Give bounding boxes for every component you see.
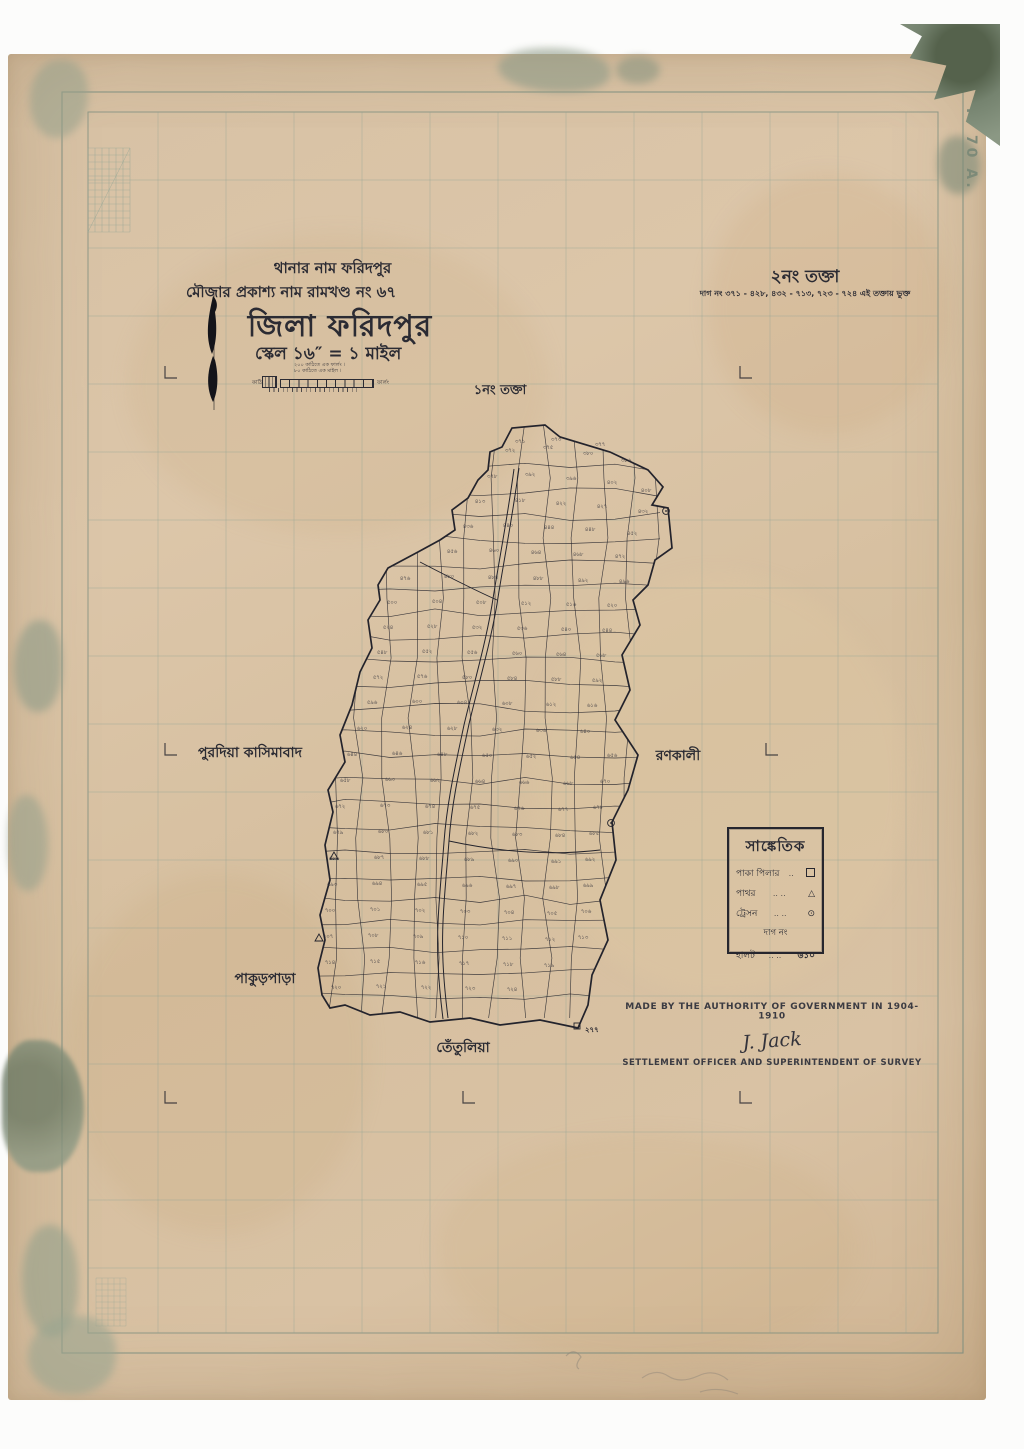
plot-number: ৬১৬ bbox=[587, 703, 598, 709]
plot-number: ৪২২ bbox=[556, 501, 566, 507]
neighbor-label-west: পুরদিয়া কাসিমাবাদ bbox=[180, 741, 320, 765]
scale-bar-ticks bbox=[269, 388, 361, 392]
plot-number: ৫৭২ bbox=[373, 675, 383, 681]
legend-row-pucca-pillar: পাকা পিলার .. bbox=[736, 866, 815, 881]
pucca-pillar-square-icon bbox=[803, 868, 815, 880]
plot-number: ৭০৬ bbox=[581, 909, 592, 915]
plot-number: ৭১৬ bbox=[415, 960, 426, 966]
plot-number: ৬২৮ bbox=[447, 726, 458, 732]
plot-number: ৭২১ bbox=[376, 984, 386, 990]
plot-number: ৪১৩ bbox=[475, 499, 486, 505]
sheet1-label: ১নং তক্তা bbox=[455, 381, 545, 402]
plot-number: ৪৯২ bbox=[578, 578, 588, 584]
plot-number: ৬৬২ bbox=[430, 778, 440, 784]
cadastral-map: ৩৭১৩৭৩৩৭৭৩৭২৩৭৫৩৮০৩৮৬৩৭৮৩৯২৩৯৬৪০২৪০৮৪১৩৪… bbox=[0, 0, 1024, 1449]
plot-number: ৩৭৫ bbox=[543, 445, 553, 451]
credits-block: MADE BY THE AUTHORITY OF GOVERNMENT IN 1… bbox=[622, 1002, 922, 1068]
plot-number: ৫২৮ bbox=[427, 624, 438, 630]
plot-number: ৬৪০ bbox=[580, 729, 590, 735]
plot-number: ৭০১ bbox=[370, 907, 380, 913]
plot-number: ৬৬৮ bbox=[563, 781, 574, 787]
plot-number: ৭০৪ bbox=[504, 910, 514, 916]
scale-caption-2: ৮০ কাঠিতে এক মাইল । bbox=[294, 368, 402, 374]
plot-number: ৫০৮ bbox=[476, 600, 487, 606]
plot-number: ৬৮৯ bbox=[464, 857, 474, 863]
plot-number: ৪৩২ bbox=[638, 509, 648, 515]
plot-number: ৬৯১ bbox=[551, 859, 561, 865]
plot-number: ৬৮৩ bbox=[512, 832, 523, 838]
plot-number: ৬৫২ bbox=[526, 754, 536, 760]
scale-bar-subdivision bbox=[262, 376, 277, 388]
sheet2-plot-range: দাগ নং ৩৭১ - ৪২৮, ৪৩২ - ৭১৩, ৭২৩ - ৭২৪ এ… bbox=[685, 288, 925, 301]
signature: J. Jack bbox=[622, 1020, 923, 1063]
plot-number: ৫৬৪ bbox=[556, 652, 566, 658]
plot-number: ৪৭৬ bbox=[400, 576, 411, 582]
corner-plot-number: ২৭৭ bbox=[585, 1026, 599, 1034]
plot-number: ৩৮৬ bbox=[621, 458, 632, 464]
plot-number: ৬৯০ bbox=[508, 858, 518, 864]
plot-number: ৪০৮ bbox=[641, 488, 652, 494]
plot-number: ৬৩২ bbox=[492, 727, 502, 733]
plot-number: ৬৯৯ bbox=[583, 883, 593, 889]
plot-number: ৬৮২ bbox=[468, 831, 478, 837]
plot-number: ৫১২ bbox=[521, 601, 531, 607]
plot-number: ৬৪৮ bbox=[437, 752, 448, 758]
plot-number: ৭০২ bbox=[415, 908, 425, 914]
neighbor-label-east: রণকালী bbox=[638, 744, 718, 768]
plot-number: ৭১৯ bbox=[544, 963, 554, 969]
plot-number: ৪৭২ bbox=[615, 554, 625, 560]
plot-number: ৩৭৮ bbox=[487, 474, 498, 480]
plot-number: ৭২৩ bbox=[465, 986, 476, 992]
plot-number: ৬৭৭ bbox=[558, 807, 568, 813]
plot-number: ৩৯৬ bbox=[566, 476, 577, 482]
legend-title: সাঙ্কেতিক bbox=[736, 835, 815, 860]
plot-number: ৩৭১ bbox=[515, 439, 525, 445]
legend-row-traverse-station: ট্রেসন .. .. ⊙ bbox=[736, 906, 815, 921]
plot-number: ৪১৮ bbox=[515, 498, 526, 504]
plot-number: ৬১২ bbox=[546, 702, 556, 708]
plot-number: ৬৪৪ bbox=[347, 752, 357, 758]
plot-number: ৫২০ bbox=[607, 603, 617, 609]
plot-number: ৫৯৬ bbox=[367, 700, 378, 706]
plot-number: ৬৭৩ bbox=[380, 803, 391, 809]
page-ref-label: P. 70 A. bbox=[963, 108, 979, 191]
plot-number: ৫৫৬ bbox=[467, 650, 478, 656]
plot-number: ৭০৩ bbox=[460, 909, 471, 915]
plot-number: ৪২৭ bbox=[597, 504, 607, 510]
traverse-station-circle-icon: ⊙ bbox=[803, 909, 815, 919]
plot-number: ৪৪৪ bbox=[544, 525, 554, 531]
plot-number: ৬৭৬ bbox=[514, 806, 525, 812]
legend-row-halot: হালট .. .. ৬১০ bbox=[736, 948, 815, 963]
plot-number: ৭১৭ bbox=[459, 961, 469, 967]
plot-number: ৩৭২ bbox=[505, 448, 515, 454]
legend-box: সাঙ্কেতিক পাকা পিলার .. পাথর .. .. △ ট্র… bbox=[727, 827, 824, 954]
plot-number: ৪৮৪ bbox=[488, 575, 498, 581]
plot-number: ৫০০ bbox=[387, 600, 397, 606]
plot-number: ৫৫২ bbox=[422, 649, 432, 655]
plot-number: ৭১০ bbox=[458, 935, 468, 941]
plot-number: ৭১২ bbox=[545, 937, 555, 943]
plot-number: ৫৬০ bbox=[512, 651, 522, 657]
legend-row-stone: পাথর .. .. △ bbox=[736, 886, 815, 901]
plot-number: ৬৮১ bbox=[423, 830, 433, 836]
plot-number: ৪০২ bbox=[607, 480, 617, 486]
plot-number: ৫৩৬ bbox=[517, 626, 528, 632]
plot-number: ৭২০ bbox=[331, 985, 341, 991]
plot-number: ৬৪৬ bbox=[392, 751, 403, 757]
plot-number: ৭২৪ bbox=[507, 987, 517, 993]
plot-number: ৬৭৪ bbox=[425, 804, 435, 810]
plot-number: ৬২৪ bbox=[402, 725, 412, 731]
plot-number: ৪৬৮ bbox=[573, 552, 584, 558]
plot-number: ৭১৮ bbox=[503, 962, 514, 968]
plot-number: ৬৮৪ bbox=[555, 833, 565, 839]
plot-number: ৬৭৫ bbox=[470, 805, 480, 811]
plot-number: ৬৬৬ bbox=[519, 780, 530, 786]
plot-number: ৫০৪ bbox=[432, 599, 442, 605]
plot-number: ৫৭৬ bbox=[417, 674, 428, 680]
plot-number: ৬০০ bbox=[412, 699, 422, 705]
plot-number: ৪৩৬ bbox=[463, 524, 474, 530]
plot-number: ৭০০ bbox=[325, 908, 335, 914]
plot-number: ৫৩২ bbox=[472, 625, 482, 631]
plot-number: ৫৮৮ bbox=[551, 677, 562, 683]
plot-number: ৬৮৫ bbox=[589, 831, 599, 837]
plot-number: ৬৭৯ bbox=[333, 830, 343, 836]
plot-number: ৬৫৮ bbox=[340, 778, 351, 784]
plot-number: ৬৯৬ bbox=[462, 883, 473, 889]
plot-number: ৭০৭ bbox=[323, 934, 333, 940]
stone-triangle-icon: △ bbox=[803, 889, 815, 899]
plot-number: ৬৭২ bbox=[335, 804, 345, 810]
plot-number: ৬৯৭ bbox=[506, 884, 516, 890]
plot-number: ৬৯৪ bbox=[372, 881, 382, 887]
plot-number: ৫৪৮ bbox=[377, 650, 388, 656]
plot-number: ৪৮৮ bbox=[533, 576, 544, 582]
plot-number: ৭১৪ bbox=[325, 960, 335, 966]
plot-number: ৬৮৭ bbox=[374, 855, 384, 861]
plot-number: ৩৯২ bbox=[525, 472, 535, 478]
plot-number: ৪৯৬ bbox=[619, 579, 630, 585]
authority-line: MADE BY THE AUTHORITY OF GOVERNMENT IN 1… bbox=[622, 1003, 922, 1022]
officer-line: SETTLEMENT OFFICER AND SUPERINTENDENT OF… bbox=[622, 1058, 922, 1068]
plot-number: ৩৮০ bbox=[583, 451, 593, 457]
plot-number: ৭০৫ bbox=[547, 911, 557, 917]
plot-number: ৬৫৪ bbox=[570, 755, 580, 761]
plot-number: ৬২০ bbox=[357, 726, 367, 732]
plot-number: ৬৭০ bbox=[600, 779, 610, 785]
plot-number: ৪৪৮ bbox=[585, 527, 596, 533]
plot-number: ৬৯৮ bbox=[549, 885, 560, 891]
plot-number: ৩৭৭ bbox=[595, 442, 605, 448]
plot-number: ৬০৮ bbox=[502, 701, 513, 707]
plot-number: ৬৮৮ bbox=[419, 856, 430, 862]
plot-number: ৬৭৮ bbox=[593, 805, 604, 811]
scale-bar: ২০০ কাঠিতে এক ফার্লং । ৮০ কাঠিতে এক মাইল… bbox=[252, 362, 402, 392]
plot-number: ৫৪৪ bbox=[602, 628, 612, 634]
plot-number: ৩৭৩ bbox=[551, 437, 562, 443]
plot-number: ৪৬৪ bbox=[531, 550, 541, 556]
plot-number: ৬০৪ bbox=[457, 700, 467, 706]
neighbor-label-south: তেঁতুলিয়া bbox=[423, 1036, 503, 1060]
legend-daag-heading: দাগ নং bbox=[736, 926, 815, 940]
plot-number: ৫৮৪ bbox=[507, 676, 517, 682]
thana-name-line: থানার নাম ফরিদপুর bbox=[240, 257, 425, 282]
plot-number: ৭১৩ bbox=[578, 935, 589, 941]
plot-number: ৬৯২ bbox=[585, 857, 595, 863]
halot-plot-number: ৬১০ bbox=[795, 948, 815, 963]
plot-number: ৬৬০ bbox=[385, 777, 395, 783]
plot-number: ৭১১ bbox=[502, 936, 512, 942]
plot-number: ৬৫০ bbox=[482, 753, 492, 759]
plot-number: ৬৯৫ bbox=[417, 882, 427, 888]
plot-number: ৪৬০ bbox=[489, 548, 499, 554]
plot-number: ৬৩৬ bbox=[536, 728, 547, 734]
scale-right-label: ফার্লং bbox=[377, 380, 389, 388]
plot-number: ৫৬৮ bbox=[596, 653, 607, 659]
scanned-map-page: ৩৭১৩৭৩৩৭৭৩৭২৩৭৫৩৮০৩৮৬৩৭৮৩৯২৩৯৬৪০২৪০৮৪১৩৪… bbox=[0, 0, 1024, 1449]
scale-left-label: কাঠি bbox=[252, 380, 262, 388]
plot-number: ৪৫৬ bbox=[447, 549, 458, 555]
plot-number: ৭০৯ bbox=[413, 934, 423, 940]
plot-number: ৪৮০ bbox=[444, 574, 454, 580]
plot-number: ৫২৪ bbox=[383, 625, 393, 631]
plot-number: ৪৫২ bbox=[627, 531, 637, 537]
plot-number: ৭১৫ bbox=[370, 959, 380, 965]
plot-number: ৫৪০ bbox=[561, 627, 571, 633]
plot-number: ৬৮০ bbox=[378, 829, 388, 835]
plot-number: ৫১৬ bbox=[566, 602, 577, 608]
plot-number: ৬৬৪ bbox=[475, 779, 485, 785]
plot-number: ৬৫৬ bbox=[607, 753, 618, 759]
plot-number: ৫৯২ bbox=[592, 678, 602, 684]
plot-number: ৬৯৩ bbox=[327, 882, 338, 888]
plot-number: ৭২২ bbox=[421, 985, 431, 991]
plot-number: ৫৮০ bbox=[462, 675, 472, 681]
neighbor-label-southwest: পাকুড়পাড়া bbox=[215, 967, 315, 991]
plot-number: ৭০৮ bbox=[368, 933, 379, 939]
scale-bar-segments bbox=[280, 379, 374, 388]
plot-number: ৪৪০ bbox=[503, 523, 513, 529]
